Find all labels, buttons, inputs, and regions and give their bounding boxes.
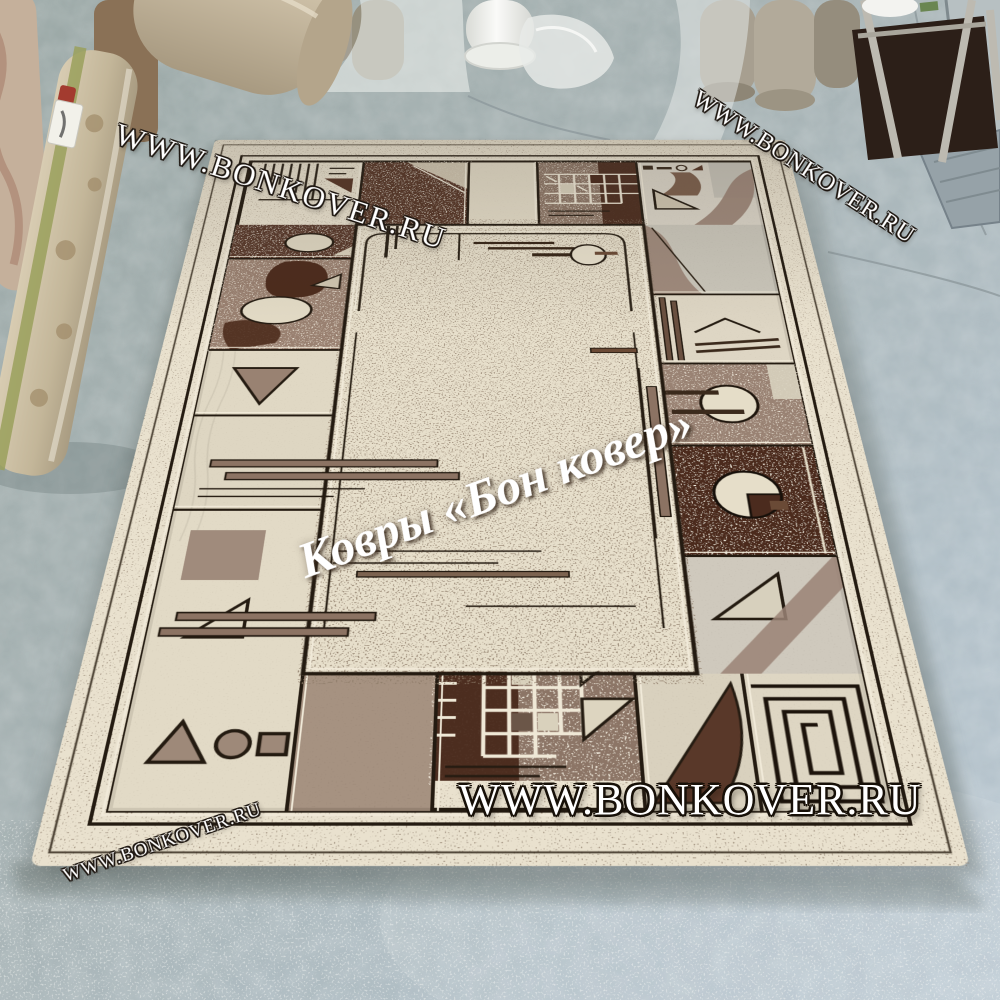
rug-far-edge-shading [166, 140, 834, 333]
rug-product-photo: WWW.BONKOVER.RU WWW.BONKOVER.RU Ковры «Б… [0, 0, 1000, 1000]
rug-motif-glyph-row [108, 674, 303, 811]
rug-motif-circle-bars [660, 363, 812, 445]
rug-motif-circle-pie [670, 446, 836, 556]
